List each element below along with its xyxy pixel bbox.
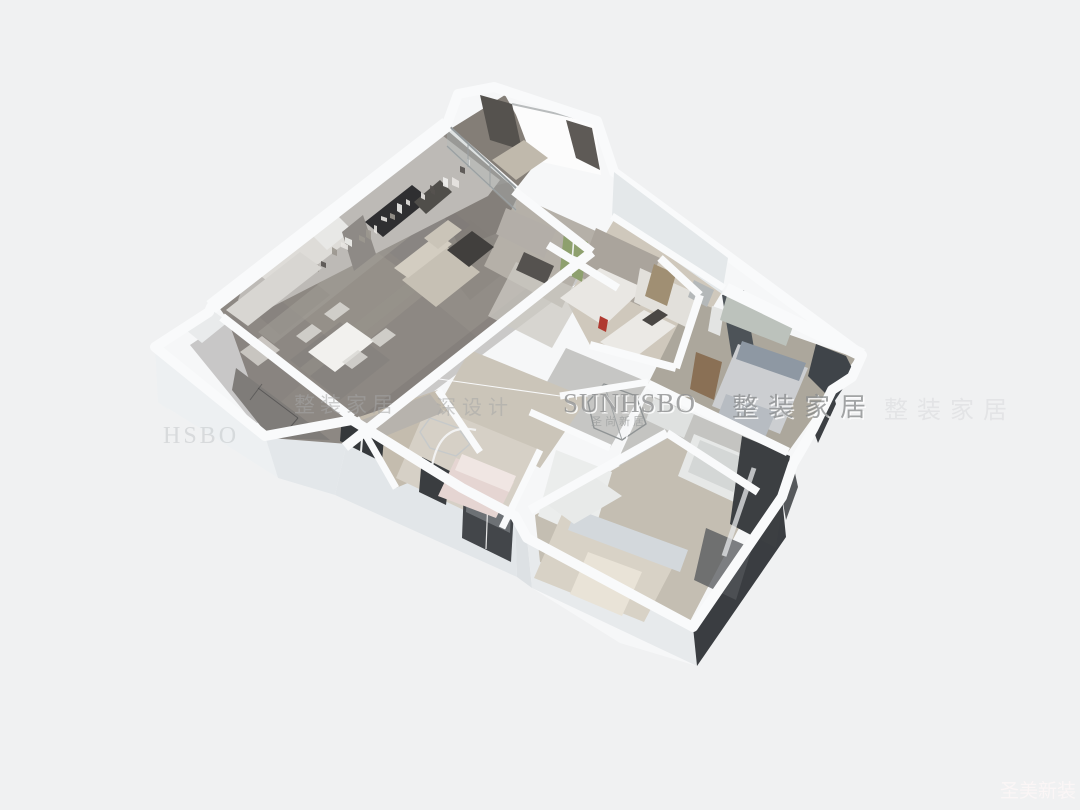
svg-text:整装家居: 整装家居 xyxy=(732,392,876,422)
svg-text:HSBO: HSBO xyxy=(163,423,239,449)
svg-text:整装家居: 整装家居 xyxy=(884,397,1016,424)
svg-text:SUNHSBO: SUNHSBO xyxy=(563,388,696,418)
svg-text:圣尚新居: 圣尚新居 xyxy=(591,414,647,428)
svg-text:整装家居: 整装家居 xyxy=(294,394,398,417)
svg-text:圣美新装: 圣美新装 xyxy=(1000,780,1076,802)
svg-text:深设计: 深设计 xyxy=(436,396,514,419)
